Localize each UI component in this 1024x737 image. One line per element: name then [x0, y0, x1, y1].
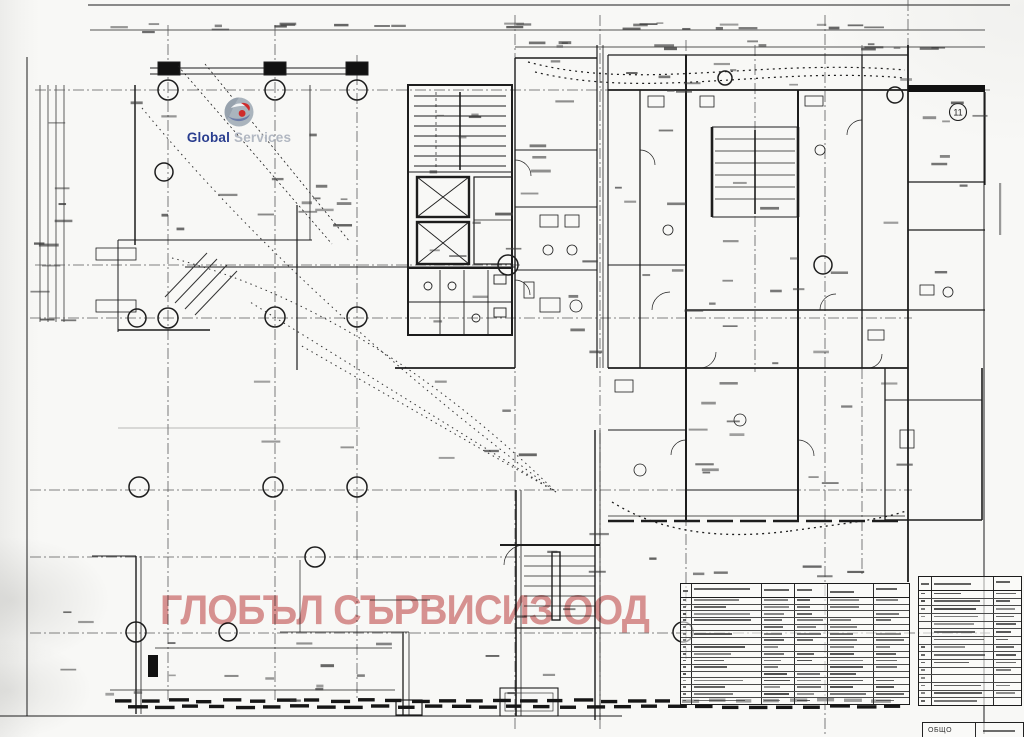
greeked-cell-text	[797, 693, 814, 695]
table-row-divider	[919, 682, 1021, 683]
table-row-divider	[681, 651, 909, 652]
greeked-cell-text	[996, 623, 1016, 625]
greeked-cell-text	[683, 613, 686, 615]
greeked-cell-text	[830, 606, 859, 608]
greeked-cell-text	[797, 680, 821, 682]
table-row-divider	[919, 644, 1021, 645]
greeked-cell-text	[934, 662, 969, 664]
greeked-cell-text	[694, 686, 725, 688]
greeked-cell-text	[921, 662, 925, 664]
greeked-cell-text	[996, 646, 1014, 648]
greeked-cell-text	[797, 599, 810, 601]
greeked-cell-text	[876, 666, 897, 668]
greeked-cell-text	[694, 606, 726, 608]
greeked-cell-text	[694, 619, 751, 621]
greeked-cell-text	[694, 613, 750, 615]
greeked-cell-text	[764, 680, 790, 682]
greeked-cell-text	[996, 639, 1008, 641]
table-row-divider	[681, 697, 909, 698]
greeked-cell-text	[996, 593, 1016, 595]
greeked-cell-text	[934, 608, 976, 610]
table-header-divider	[681, 597, 909, 598]
greeked-cell-text	[830, 639, 857, 641]
greeked-cell-text	[876, 686, 894, 688]
stair-elevator-core	[395, 85, 515, 368]
table-row-divider	[919, 605, 1021, 606]
globe-swoosh-icon	[221, 94, 257, 130]
blueprint-scan-page: 11 Global Services ГЛОБЪЛ СЪРВИСИЗ ООД О…	[0, 0, 1024, 737]
totals-box: ОБЩО	[922, 722, 1024, 737]
greeked-header-text	[797, 589, 812, 591]
table-row-divider	[919, 659, 1021, 660]
greeked-header-text	[876, 588, 897, 590]
greeked-cell-text	[764, 673, 787, 675]
greeked-cell-text	[797, 606, 810, 608]
greeked-cell-text	[996, 662, 1016, 664]
greeked-cell-text	[797, 626, 816, 628]
greeked-header-text	[683, 590, 688, 592]
totals-divider	[975, 723, 976, 737]
greeked-cell-text	[934, 654, 985, 656]
balcony-room-11	[908, 85, 985, 310]
greeked-cell-text	[683, 626, 686, 628]
room-schedule-table-left	[680, 583, 910, 705]
greeked-cell-text	[876, 613, 899, 615]
centre-strip	[515, 45, 603, 368]
greeked-cell-text	[797, 700, 810, 702]
greeked-cell-text	[694, 700, 745, 702]
logo-wordmark: Global Services	[184, 130, 294, 145]
table-row-divider	[919, 697, 1021, 698]
greeked-cell-text	[830, 693, 866, 695]
table-row-divider	[919, 674, 1021, 675]
greeked-cell-text	[876, 700, 894, 702]
greeked-cell-text	[921, 700, 925, 702]
greeked-cell-text	[876, 633, 901, 635]
greeked-cell-text	[876, 653, 896, 655]
greeked-cell-text	[876, 693, 904, 695]
greeked-cell-text	[694, 633, 732, 635]
table-row-divider	[681, 664, 909, 665]
table-row-divider	[681, 677, 909, 678]
table-row-divider	[681, 671, 909, 672]
greeked-cell-text	[830, 666, 863, 668]
greeked-cell-text	[921, 669, 925, 671]
greeked-cell-text	[921, 685, 925, 687]
greeked-header-text	[934, 583, 971, 585]
table-header-divider	[919, 590, 1021, 591]
greeked-cell-text	[764, 633, 782, 635]
table-row-divider	[681, 624, 909, 625]
greeked-cell-text	[683, 680, 686, 682]
greeked-cell-text	[934, 631, 975, 633]
greeked-cell-text	[683, 660, 686, 662]
greeked-cell-text	[934, 692, 982, 694]
greeked-cell-text	[934, 639, 984, 641]
greeked-cell-text	[694, 660, 724, 662]
greeked-cell-text	[683, 606, 686, 608]
greeked-cell-text	[683, 666, 686, 668]
greeked-cell-text	[683, 686, 686, 688]
greeked-cell-text	[934, 616, 978, 618]
greeked-cell-text	[934, 700, 977, 702]
greeked-header-text	[996, 581, 1010, 583]
greeked-cell-text	[876, 646, 890, 648]
greeked-cell-text	[996, 692, 1015, 694]
greeked-cell-text	[830, 633, 853, 635]
greeked-cell-text	[921, 616, 925, 618]
greeked-cell-text	[764, 613, 784, 615]
greeked-cell-text	[934, 623, 974, 625]
table-row-divider	[681, 604, 909, 605]
greeked-cell-text	[683, 673, 686, 675]
elevator-shaft-2	[417, 222, 469, 264]
main-staircase	[712, 127, 798, 217]
greeked-cell-text	[694, 693, 733, 695]
table-row-divider	[919, 636, 1021, 637]
core-bathrooms	[408, 270, 512, 335]
greeked-cell-text	[921, 677, 925, 679]
greeked-cell-text	[996, 616, 1014, 618]
greeked-cell-text	[683, 646, 686, 648]
greeked-cell-text	[921, 600, 925, 602]
table-row-divider	[919, 690, 1021, 691]
elevator-shaft-1	[417, 177, 469, 217]
greeked-cell-text	[797, 673, 820, 675]
room-schedule-table-right	[918, 576, 1022, 706]
greeked-cell-text	[683, 639, 686, 641]
greeked-cell-text	[683, 700, 686, 702]
greeked-cell-text	[683, 653, 686, 655]
greeked-cell-text	[921, 608, 925, 610]
table-row-divider	[681, 657, 909, 658]
greeked-cell-text	[683, 693, 686, 695]
greeked-cell-text	[830, 626, 857, 628]
greeked-cell-text	[876, 639, 904, 641]
greeked-cell-text	[830, 653, 854, 655]
greeked-cell-text	[694, 666, 727, 668]
table-column-divider	[993, 577, 994, 705]
greeked-cell-text	[934, 685, 981, 687]
greeked-cell-text	[797, 639, 813, 641]
greeked-cell-text	[996, 600, 1010, 602]
greeked-cell-text	[921, 654, 925, 656]
greeked-cell-text	[996, 654, 1016, 656]
table-row-divider	[919, 628, 1021, 629]
greeked-cell-text	[797, 686, 821, 688]
greeked-cell-text	[764, 639, 784, 641]
greeked-header-text	[921, 583, 929, 585]
greeked-cell-text	[934, 600, 980, 602]
greeked-cell-text	[996, 669, 1011, 671]
table-row-divider	[681, 617, 909, 618]
company-watermark: ГЛОБЪЛ СЪРВИСИЗ ООД	[160, 586, 602, 634]
greeked-cell-text	[764, 626, 783, 628]
greeked-cell-text	[797, 660, 812, 662]
greeked-cell-text	[764, 646, 778, 648]
greeked-cell-text	[830, 646, 854, 648]
greeked-totals-value	[983, 730, 1015, 732]
greeked-cell-text	[996, 631, 1011, 633]
greeked-cell-text	[683, 619, 686, 621]
greeked-cell-text	[830, 660, 863, 662]
greeked-cell-text	[764, 700, 780, 702]
greeked-cell-text	[683, 633, 686, 635]
table-row-divider	[919, 613, 1021, 614]
greeked-cell-text	[764, 599, 788, 601]
greeked-cell-text	[921, 593, 925, 595]
staircase-treads	[414, 92, 506, 170]
greeked-cell-text	[797, 633, 821, 635]
greeked-header-text	[764, 589, 789, 591]
greeked-cell-text	[876, 660, 897, 662]
table-row-divider	[919, 651, 1021, 652]
room-number-label: 11	[953, 108, 962, 118]
greeked-cell-text	[830, 619, 851, 621]
table-row-divider	[919, 621, 1021, 622]
table-row-divider	[919, 598, 1021, 599]
right-fixtures	[615, 96, 914, 476]
greeked-cell-text	[934, 593, 961, 595]
greeked-header-text	[694, 588, 750, 590]
lower-left-block	[92, 556, 430, 716]
greeked-cell-text	[830, 686, 853, 688]
table-row-divider	[681, 610, 909, 611]
greeked-cell-text	[996, 608, 1015, 610]
greeked-cell-text	[694, 599, 739, 601]
greeked-cell-text	[830, 673, 856, 675]
greeked-cell-text	[694, 680, 743, 682]
room-badge: 11	[950, 104, 967, 121]
greeked-cell-text	[694, 646, 745, 648]
table-row-divider	[681, 637, 909, 638]
greeked-cell-text	[934, 646, 965, 648]
logo-word-services: Services	[234, 130, 291, 145]
greeked-cell-text	[764, 693, 789, 695]
upper-left-block	[96, 62, 515, 428]
global-services-logo: Global Services	[184, 94, 294, 156]
greeked-cell-text	[764, 606, 789, 608]
greeked-cell-text	[764, 653, 784, 655]
greeked-cell-text	[996, 685, 1010, 687]
greeked-cell-text	[830, 599, 859, 601]
greeked-cell-text	[876, 599, 898, 601]
table-row-divider	[681, 644, 909, 645]
greeked-cell-text	[694, 653, 731, 655]
greeked-cell-text	[876, 680, 894, 682]
logo-word-global: Global	[187, 130, 230, 145]
table-row-divider	[681, 684, 909, 685]
table-row-divider	[681, 691, 909, 692]
greeked-cell-text	[683, 599, 686, 601]
greeked-cell-text	[797, 653, 814, 655]
table-column-divider	[931, 577, 932, 705]
table-row-divider	[681, 630, 909, 631]
greeked-cell-text	[797, 613, 812, 615]
totals-label: ОБЩО	[928, 727, 952, 734]
greeked-cell-text	[921, 646, 925, 648]
greeked-cell-text	[764, 660, 781, 662]
greeked-cell-text	[764, 666, 778, 668]
greeked-cell-text	[797, 619, 823, 621]
greeked-cell-text	[764, 619, 782, 621]
greeked-cell-text	[764, 686, 780, 688]
greeked-header-text	[830, 591, 854, 593]
table-row-divider	[919, 667, 1021, 668]
greeked-cell-text	[921, 692, 925, 694]
greeked-cell-text	[830, 680, 863, 682]
greeked-cell-text	[876, 619, 891, 621]
